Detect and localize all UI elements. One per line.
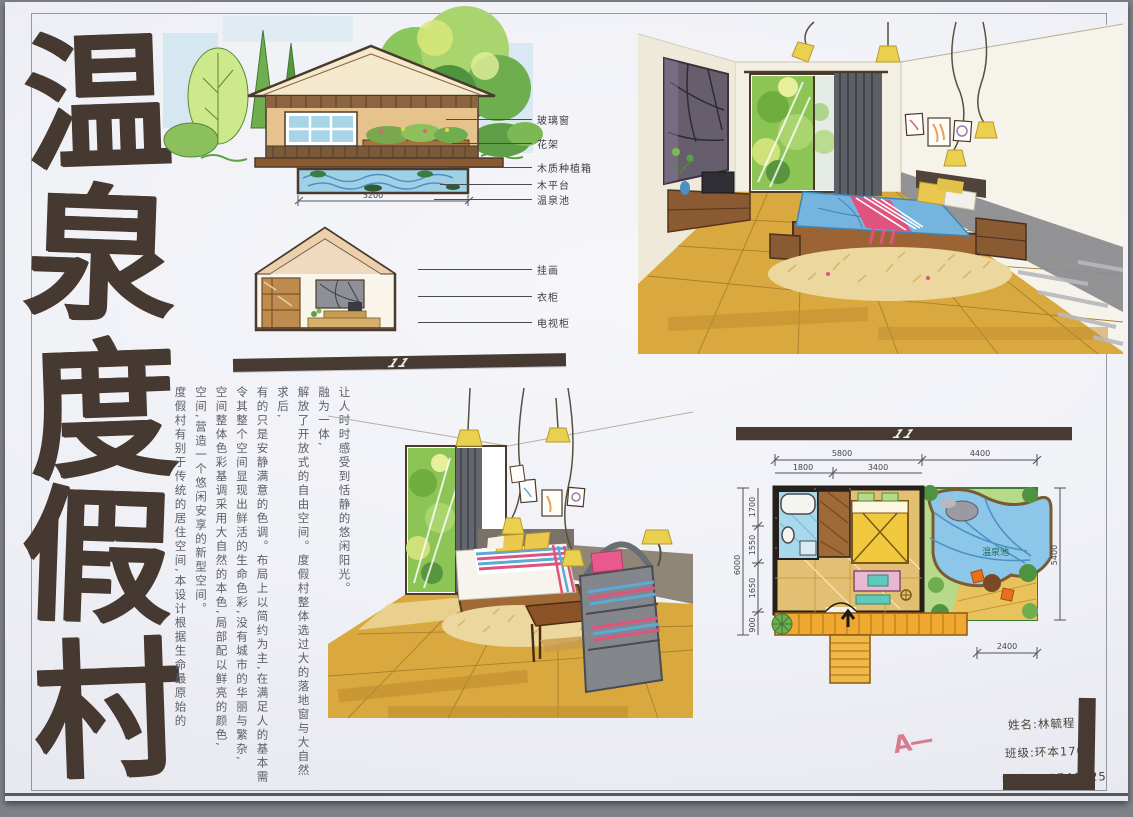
floor-plan: 温泉池 [730, 443, 1105, 705]
perspective-bedroom-2 [328, 388, 693, 718]
svg-text:900: 900 [748, 617, 757, 632]
divider-bar: 11 [736, 427, 1072, 440]
svg-text:4400: 4400 [970, 449, 990, 458]
annotation-label: 温泉池 [537, 192, 570, 207]
elevation-dim-text: 3200 [363, 191, 383, 200]
svg-text:1550: 1550 [748, 535, 757, 555]
leader-line [434, 199, 532, 200]
title-char: 假 [19, 483, 175, 633]
paper-bottom-edge [5, 793, 1128, 796]
annotation-label: 花架 [537, 136, 559, 151]
description-column: 空间,营造一个悠闲安享的新型空间。 [191, 386, 212, 786]
annotation-label: 玻璃窗 [537, 112, 570, 127]
svg-text:2400: 2400 [997, 642, 1017, 651]
leader-line [448, 167, 532, 168]
title-char: 泉 [22, 181, 178, 331]
svg-text:5800: 5800 [832, 449, 852, 458]
annotation-label: 木质种植箱 [537, 160, 592, 175]
class-label: 班级: [1005, 745, 1035, 760]
description-column: 空间整体色彩基调采用大自然的本色,局部配以鲜亮的颜色, [211, 386, 232, 786]
title-char: 度 [26, 335, 179, 488]
svg-text:1700: 1700 [748, 497, 757, 517]
leader-line [452, 143, 532, 144]
perspective-bedroom-1 [638, 22, 1123, 354]
annotation-label: 木平台 [537, 177, 570, 192]
name-value: 林毓程 [1038, 716, 1076, 731]
leader-line [440, 184, 532, 185]
design-description: 度假村有别于传统的居住空间,本设计根据生命最原始的 空间,营造一个悠闲安享的新型… [170, 386, 355, 786]
svg-text:3400: 3400 [868, 463, 888, 472]
description-column: 度假村有别于传统的居住空间,本设计根据生命最原始的 [170, 386, 191, 786]
title-char: 温 [21, 27, 174, 180]
leader-line [446, 119, 532, 120]
description-column: 令其整个空间显现出鲜活的生命色彩,没有城市的华丽与繁杂, [232, 386, 253, 786]
elevation-drawing: 3200 [163, 8, 535, 210]
annotation-label: 电视柜 [537, 315, 570, 330]
title-char: 村 [31, 635, 184, 788]
svg-text:1800: 1800 [793, 463, 813, 472]
pool-label: 温泉池 [982, 546, 1009, 558]
presentation-board: 温 泉 度 假 村 [0, 0, 1133, 817]
name-label: 姓名: [1008, 717, 1038, 732]
leader-line [418, 296, 532, 297]
elevation-dim [295, 195, 473, 206]
svg-text:5400: 5400 [1050, 545, 1059, 565]
description-column: 有的只是安静满意的色调。布局上以简约为主,在满足人的基本需求后, [252, 386, 293, 786]
info-name-line: 姓名:林毓程 [1008, 715, 1076, 733]
section-drawing [248, 222, 403, 336]
svg-text:6000: 6000 [733, 555, 742, 575]
svg-text:1650: 1650 [748, 578, 757, 598]
corner-bracket-horizontal [1003, 774, 1095, 790]
divider-mark: 11 [386, 356, 413, 368]
divider-mark: 11 [890, 428, 917, 440]
annotation-label: 挂画 [537, 262, 559, 277]
annotation-label: 衣柜 [537, 289, 559, 304]
leader-line [418, 322, 532, 323]
leader-line [418, 269, 532, 270]
